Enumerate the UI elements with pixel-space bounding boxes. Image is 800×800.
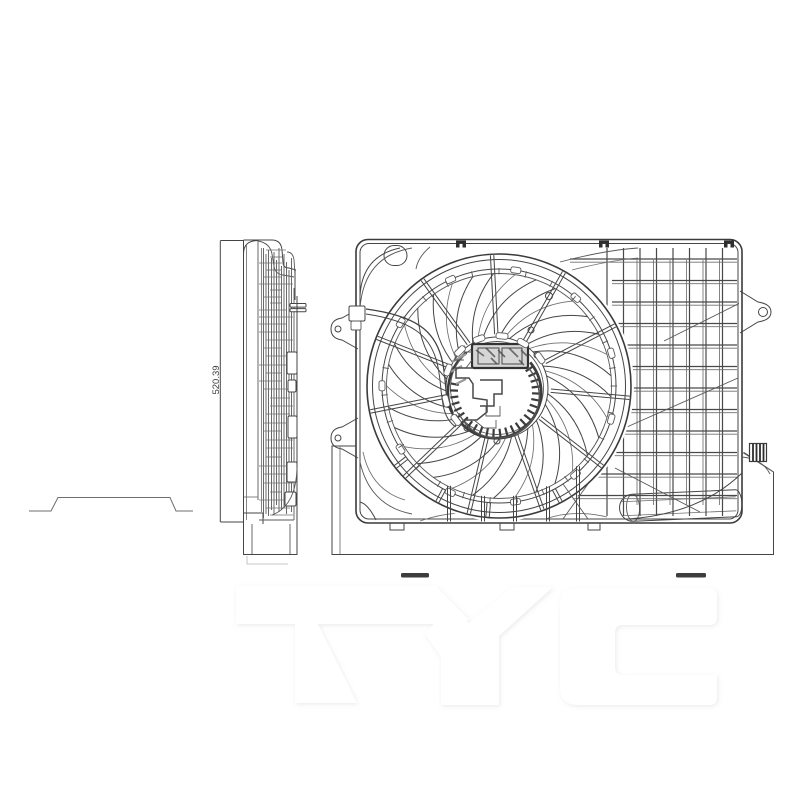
svg-text:520.39: 520.39 — [211, 365, 222, 394]
